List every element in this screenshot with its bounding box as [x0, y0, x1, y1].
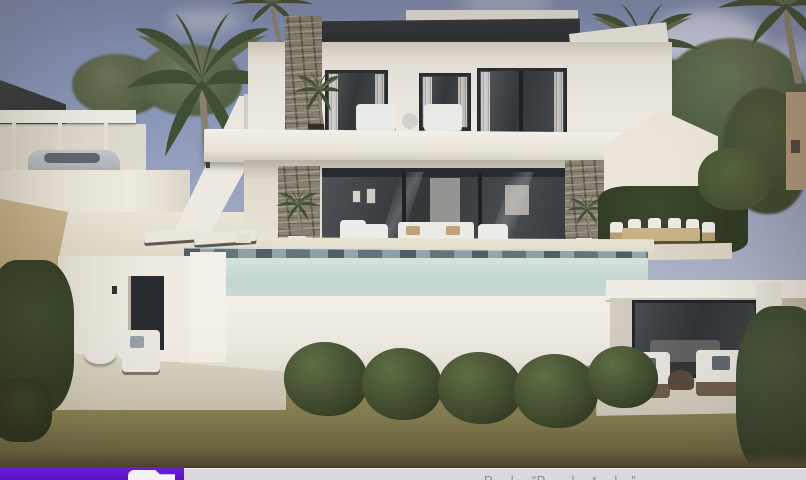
- garden-bush: [514, 354, 598, 428]
- lounger-table: [236, 233, 251, 243]
- sofa-cushion: [406, 226, 420, 235]
- wall-sconce: [112, 286, 117, 294]
- pergola-post: [12, 122, 16, 172]
- pouf: [84, 344, 116, 364]
- bottom-shadow: [0, 452, 806, 468]
- hedge: [0, 378, 52, 442]
- caption-text: P… l… “P….. l… t… l…”: [484, 473, 636, 480]
- balcony-plant: [292, 70, 346, 132]
- garden-bush: [438, 352, 522, 424]
- balcony-chair: [424, 104, 462, 131]
- terrace-side-table: [668, 370, 694, 390]
- armchair-pillow: [130, 336, 144, 348]
- balcony-chair: [356, 104, 396, 131]
- garden-bush: [362, 348, 442, 420]
- garden-bush: [588, 346, 658, 408]
- lower-terrace-return-wall: [190, 252, 226, 362]
- neighbor-window: [791, 140, 800, 153]
- window-mullion: [519, 71, 523, 135]
- balcony-side-table: [402, 113, 418, 129]
- framed-art: [366, 188, 376, 204]
- armchair-cushion: [712, 356, 730, 370]
- screenshot-root: P… l… “P….. l… t… l…”: [0, 0, 806, 480]
- potted-palm: [274, 188, 322, 238]
- car-window: [44, 153, 100, 163]
- dining-chair: [702, 222, 715, 241]
- neighbor-pergola: [0, 110, 136, 123]
- overhanging-plant: [722, 194, 806, 278]
- caption-bar[interactable]: P… l… “P….. l… t… l…”: [184, 468, 806, 480]
- framed-art: [352, 190, 361, 203]
- garden-bush: [284, 342, 368, 416]
- sofa-cushion: [446, 226, 460, 235]
- palm-tree: [710, 0, 806, 86]
- interior-shelf: [505, 185, 529, 215]
